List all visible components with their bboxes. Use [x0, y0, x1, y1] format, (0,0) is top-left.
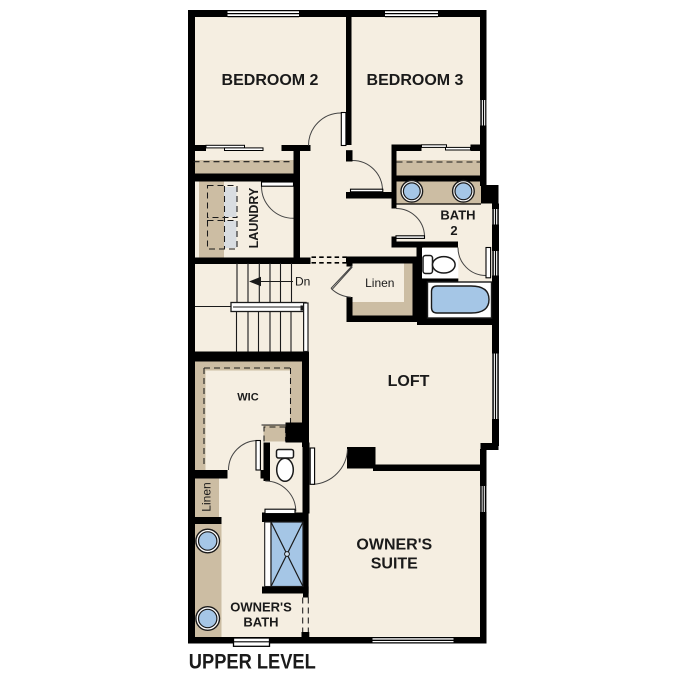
svg-text:WIC: WIC	[237, 392, 258, 404]
svg-text:BEDROOM 2: BEDROOM 2	[222, 72, 319, 89]
svg-text:LOFT: LOFT	[388, 373, 430, 390]
svg-text:BATH: BATH	[440, 208, 475, 223]
svg-text:Linen: Linen	[365, 276, 394, 290]
svg-text:BEDROOM 3: BEDROOM 3	[367, 72, 464, 89]
svg-text:SUITE: SUITE	[371, 556, 418, 573]
svg-text:OWNER'S: OWNER'S	[356, 537, 432, 554]
svg-text:OWNER'S: OWNER'S	[230, 600, 292, 615]
svg-text:LAUNDRY: LAUNDRY	[247, 187, 261, 248]
svg-text:BATH: BATH	[243, 615, 278, 630]
svg-text:2: 2	[450, 223, 457, 238]
svg-text:Linen: Linen	[200, 482, 214, 511]
svg-text:UPPER LEVEL: UPPER LEVEL	[189, 650, 316, 674]
svg-text:Dn: Dn	[295, 275, 310, 289]
